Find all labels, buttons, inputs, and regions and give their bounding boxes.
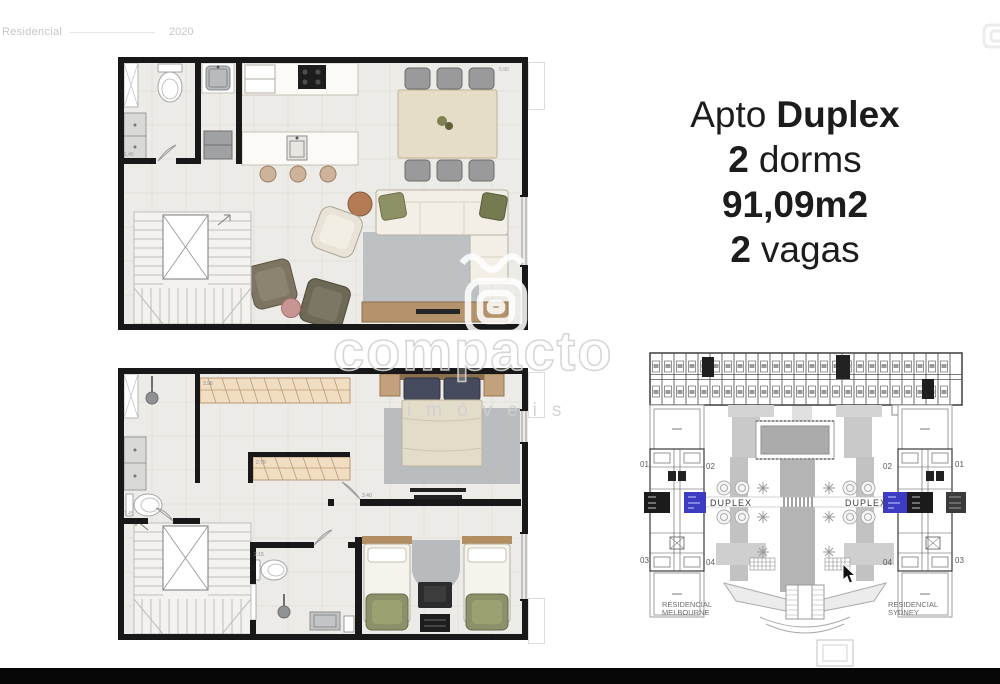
dorms-count: 2 [728,139,749,180]
exterior-shaft-lower-bottom [528,598,545,644]
stool [320,166,336,182]
window-right [520,196,528,266]
bottom-letterbox-bar [0,668,1000,684]
dim-label: 5.90 [499,67,509,73]
dim-label: 3.96 [203,381,213,387]
tv-console [362,302,508,322]
listing-vagas: 2vagas [640,227,950,272]
stool [260,166,276,182]
vagas-count: 2 [730,229,751,270]
unit-label: 01 [955,460,964,469]
stairs-upper [134,212,251,324]
shower-head [278,606,290,618]
listing-title-type: Duplex [776,94,899,135]
wardrobe-top [200,378,350,403]
unit-label: 04 [883,558,892,567]
dining-set [398,68,497,181]
toilet [134,494,162,516]
site-plan: 01 02 03 04 DUPLEX RESIDENCIAL MELBOURNE [640,347,970,669]
duplex-label: DUPLEX [845,498,887,508]
unit-label: 02 [883,462,892,471]
pouf [282,299,301,318]
page: Residencial 2020 [0,0,1000,684]
courtyard [704,402,906,666]
listing-info: AptoDuplex 2dorms 91,09m2 2vagas [640,92,950,272]
exterior-shaft-upper [528,62,545,110]
stairs-lower [134,520,251,634]
floorplan-lower: 1.45 3.96 2.75 3.40 2.15 [118,368,528,640]
toilet [158,72,182,102]
window-right-bottom [520,533,528,600]
unit-label: 03 [640,556,649,565]
twin-bedroom [362,536,512,632]
listing-title: AptoDuplex [640,92,950,137]
exterior-shaft-lower-top [528,372,545,418]
listing-dorms: 2dorms [640,137,950,182]
window-right-top [520,410,528,443]
duplex-label: DUPLEX [710,498,752,508]
dim-label: 2.15 [254,552,264,558]
vagas-label: vagas [761,229,860,270]
unit-label: 02 [706,462,715,471]
living-rug [363,232,479,302]
dim-label: 2.75 [256,460,266,466]
area-value: 91,09m2 [722,184,868,225]
listing-title-prefix: Apto [690,94,766,135]
unit-label: 03 [955,556,964,565]
shower-head [146,392,158,404]
unit-label: 04 [706,558,715,567]
dim-label: 1.45 [124,511,134,517]
entry-canopy [817,640,853,666]
year-label: 2020 [169,26,193,38]
pool [761,426,829,454]
tower-name: MELBOURNE [662,608,710,617]
residencial-label: Residencial [2,26,62,38]
unit-label: 01 [640,460,649,469]
tower-name: SYDNEY [888,608,919,617]
dim-label: 3.40 [362,493,372,499]
header-divider-line [70,32,155,33]
entry-fan [724,583,886,666]
cooktop [298,65,326,89]
listing-area: 91,09m2 [640,182,950,227]
side-table [348,192,372,216]
toilet [261,560,287,580]
mouse-cursor [842,563,856,585]
dim-label: 1.45 [124,152,134,158]
stool [290,166,306,182]
watermark-corner-icon [982,22,1000,50]
wardrobe-mid [253,457,350,480]
floorplan-upper: 5.90 1.45 [118,57,528,330]
dorms-label: dorms [759,139,862,180]
